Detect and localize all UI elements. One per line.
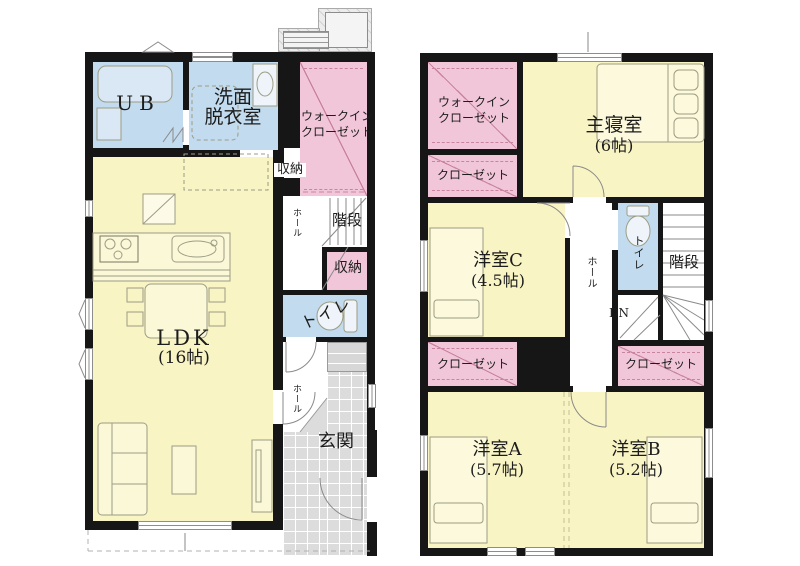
- hall-2f: [570, 203, 612, 386]
- label-stairs-1f: 階段: [328, 213, 366, 229]
- toilet1-door-gap: [286, 337, 316, 342]
- master-door-gap: [573, 197, 606, 203]
- window-master-top: [557, 53, 622, 62]
- window-room-b-right: [705, 428, 713, 478]
- label-room-c-size: (4.5帖): [461, 273, 535, 290]
- window-ldk-left-2: [85, 348, 93, 380]
- window-washroom-top: [192, 52, 233, 62]
- label-closet-room-a: クローゼット: [434, 358, 512, 371]
- label-washroom-1: 洗面: [203, 88, 263, 108]
- label-toilet-2f: トイレ: [630, 235, 646, 271]
- floorplan-canvas: UB 洗面 脱衣室 ウォークイン クローゼット 収納 ホール 階段 収納 トイレ…: [0, 0, 800, 566]
- window-kitchen-left: [85, 200, 93, 217]
- ac-outdoor-unit: [283, 31, 329, 49]
- window-entrance-right: [368, 384, 376, 408]
- toilet2-door-gap: [612, 210, 618, 250]
- label-wic-1f-1: ウォークイン: [301, 110, 367, 123]
- entrance-tile-right: [327, 372, 367, 556]
- label-wic-1f-2: クローゼット: [301, 126, 367, 139]
- label-room-a-size: (5.7帖): [460, 462, 534, 479]
- window-stairs-right: [705, 300, 713, 332]
- label-room-b-size: (5.2帖): [599, 462, 673, 479]
- washroom-door-gap: [240, 150, 273, 157]
- window-room-c-left: [420, 240, 428, 292]
- label-hall-mid-1f: ホール: [290, 208, 303, 238]
- label-stairs-2f: 階段: [665, 255, 703, 271]
- label-unit-bath: UB: [108, 93, 168, 114]
- label-ldk: LDK: [124, 327, 244, 349]
- rooms-ab-door-gap: [573, 386, 606, 392]
- label-master-bedroom: 主寝室: [576, 116, 652, 136]
- label-ldk-size: (16帖): [124, 350, 244, 368]
- label-closet-master: クローゼット: [434, 169, 512, 182]
- ub-door-gap: [183, 110, 189, 145]
- label-storage-mid-1f: 収納: [330, 261, 366, 276]
- label-down: DN: [605, 307, 633, 320]
- window-room-a-left: [420, 435, 428, 471]
- shoe-cabinet: [327, 342, 367, 372]
- label-storage-upper-1f: 収納: [274, 163, 306, 177]
- front-door-gap: [367, 477, 377, 522]
- window-room-b-bottom: [525, 547, 555, 556]
- ldk-door-gap: [273, 390, 283, 424]
- room-c-door-gap: [565, 203, 570, 238]
- window-ldk-left-1: [85, 298, 93, 330]
- label-master-size: (6帖): [576, 138, 652, 155]
- window-room-a-bottom: [487, 547, 517, 556]
- label-hall-2f: ホール: [583, 256, 598, 289]
- label-wic-2f-2: クローゼット: [438, 112, 508, 125]
- label-room-a: 洋室A: [460, 441, 534, 460]
- label-closet-room-b: クローゼット: [622, 358, 700, 371]
- label-room-b: 洋室B: [599, 441, 673, 460]
- label-room-c: 洋室C: [461, 252, 535, 271]
- label-wic-2f-1: ウォークイン: [438, 96, 508, 109]
- label-washroom-2: 脱衣室: [203, 108, 263, 128]
- label-hall-entry-1f: ホール: [290, 384, 303, 414]
- water-heater-unit: [325, 12, 368, 48]
- window-ldk-bottom: [138, 521, 232, 530]
- stairs-2f: [663, 203, 704, 340]
- label-entrance: 玄関: [313, 433, 359, 452]
